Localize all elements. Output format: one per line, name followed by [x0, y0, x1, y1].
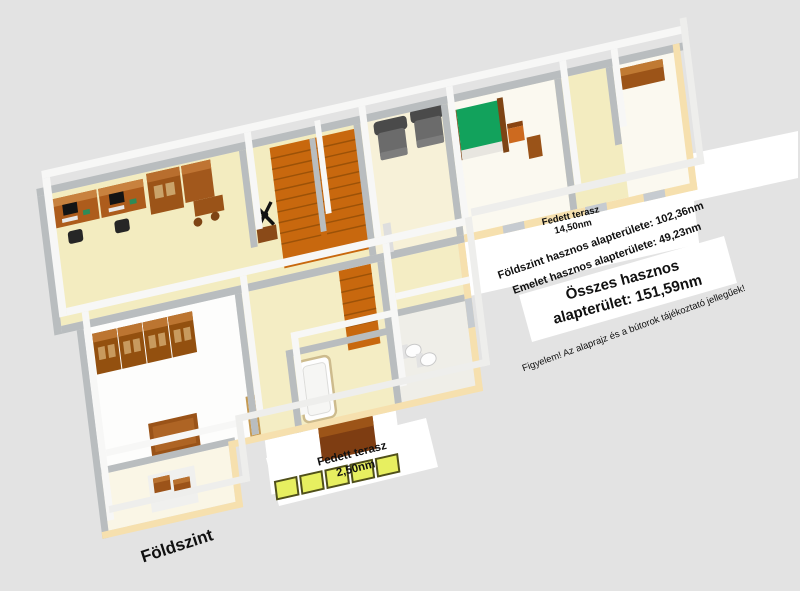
floor-plan-canvas: Fedett terasz 14,50nm Földszint hasznos … — [0, 0, 800, 591]
floor-plan-rendering — [0, 0, 800, 591]
